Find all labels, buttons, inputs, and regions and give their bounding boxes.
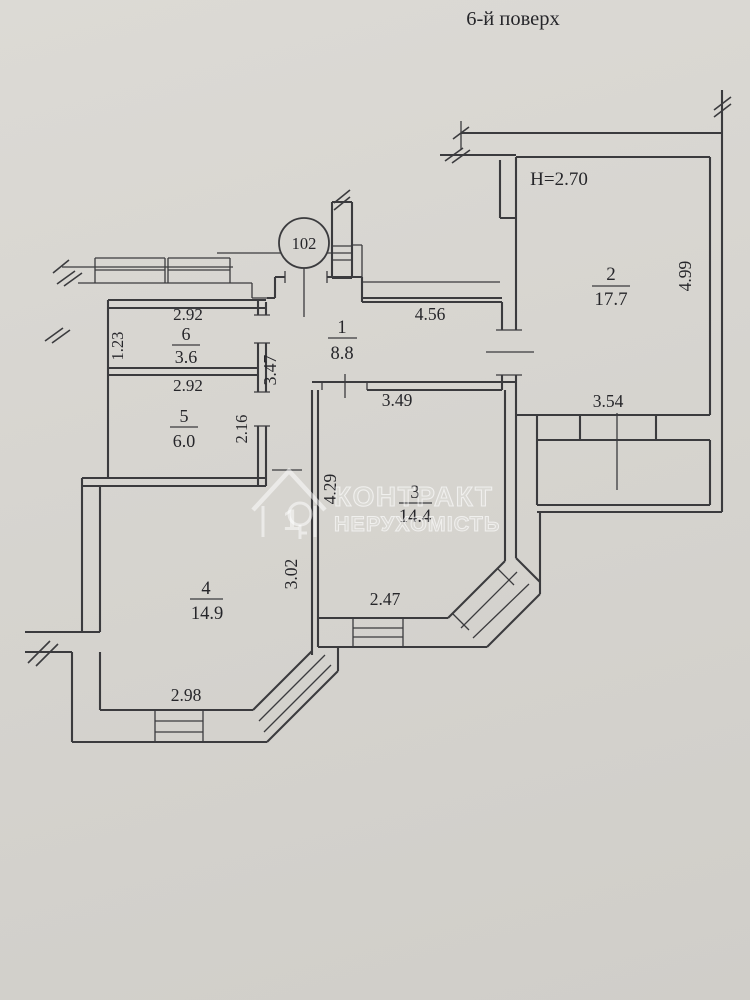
floor-plan-walls [25, 90, 731, 742]
watermark: 1 КОНТРАКТ НЕРУХОМІСТЬ [253, 471, 500, 539]
svg-text:1: 1 [283, 504, 300, 537]
dim-room4-right: 3.02 [281, 559, 301, 590]
room-6-number: 6 [182, 324, 191, 344]
dim-room5-right: 2.16 [232, 415, 251, 444]
room-2-number: 2 [606, 264, 616, 285]
dim-room6-left: 1.23 [108, 332, 127, 361]
watermark-line1: КОНТРАКТ [334, 481, 494, 512]
room-2-area: 17.7 [594, 289, 627, 310]
room-5-area: 6.0 [173, 431, 196, 451]
room-6-area: 3.6 [175, 347, 198, 367]
dim-room6-top: 2.92 [173, 305, 203, 324]
ceiling-height-note: H=2.70 [530, 169, 588, 190]
apartment-number: 102 [292, 234, 317, 253]
dim-room3-top: 3.49 [382, 390, 413, 410]
room-5-number: 5 [180, 406, 189, 426]
floor-plan-drawing: 102 6-й поверх H=2.70 2 17.7 4.99 3.54 1… [0, 0, 750, 1000]
room-1-area: 8.8 [330, 344, 353, 364]
dim-room3-bottom: 2.47 [370, 589, 401, 609]
dim-balcony-width: 3.54 [593, 391, 624, 411]
room-4-number: 4 [201, 579, 210, 599]
room-4-area: 14.9 [191, 604, 223, 624]
page-title-floor: 6-й поверх [466, 8, 560, 30]
dim-room2-right: 4.99 [675, 260, 695, 291]
dim-room1-left: 3.47 [260, 354, 280, 385]
scanned-floor-plan-page: 102 6-й поверх H=2.70 2 17.7 4.99 3.54 1… [0, 0, 750, 1000]
dim-room5-top: 2.92 [173, 376, 203, 395]
dim-room1-top: 4.56 [415, 304, 446, 324]
watermark-line2: НЕРУХОМІСТЬ [334, 512, 500, 536]
thin-lines-windows-ticks [62, 121, 617, 742]
room-1-number: 1 [337, 318, 346, 338]
dim-room4-bottom: 2.98 [171, 685, 202, 705]
watermark-logo-icon: 1 [253, 471, 325, 539]
